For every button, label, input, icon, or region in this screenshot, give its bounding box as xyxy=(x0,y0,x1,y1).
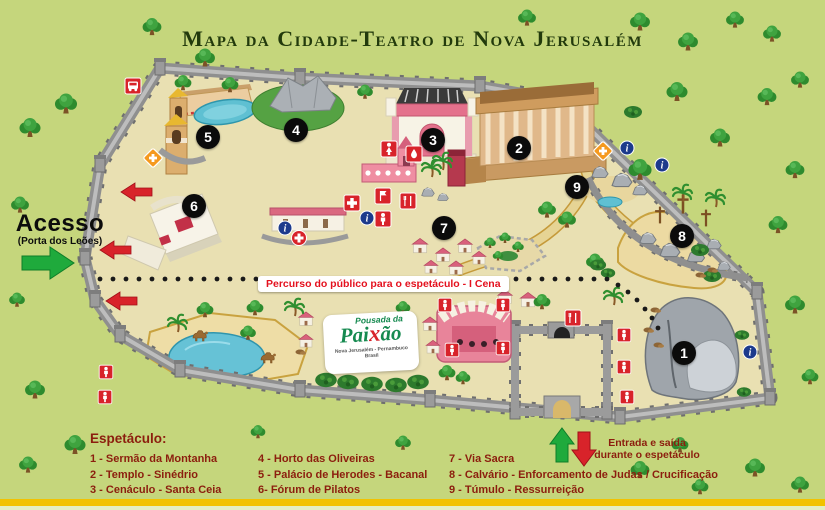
wall-tower xyxy=(294,380,306,397)
tree-icon xyxy=(802,369,819,384)
stand-icon xyxy=(617,328,631,342)
bush-icon xyxy=(737,387,751,397)
tree-icon xyxy=(65,435,86,454)
page-title: Mapa da Cidade-Teatro de Nova Jerusalém xyxy=(0,26,825,52)
tree-icon xyxy=(667,82,688,101)
stand-icon xyxy=(445,343,459,357)
pousada-main-text: Paixão xyxy=(323,322,418,347)
legend-item: 5 - Palácio de Herodes - Bacanal xyxy=(258,468,427,484)
tree-icon xyxy=(251,425,266,438)
drinking-water-icon xyxy=(406,146,422,162)
wall-tower xyxy=(154,58,166,75)
access-arrow-icon xyxy=(22,247,74,279)
tree-icon xyxy=(9,293,25,307)
info-icon xyxy=(743,345,757,359)
tree-icon xyxy=(19,457,37,473)
bush-icon xyxy=(407,375,429,389)
tree-icon xyxy=(20,118,41,137)
marker-8: 8 xyxy=(670,224,694,248)
wall-tower xyxy=(474,76,486,93)
legend-item: 2 - Templo - Sinédrio xyxy=(90,468,221,484)
bush-icon xyxy=(624,106,642,118)
first-aid-icon xyxy=(344,195,360,211)
flag-icon xyxy=(375,188,391,204)
marker-4: 4 xyxy=(284,118,308,142)
tree-icon xyxy=(769,216,788,233)
access-subtitle: (Porta dos Leões) xyxy=(4,236,116,247)
stand-icon xyxy=(438,298,452,312)
tree-icon xyxy=(745,459,765,477)
pousada-sign: Pousada da Paixão Nova Jerusalém - Perna… xyxy=(323,311,420,375)
access-label: Acesso (Porta dos Leões) xyxy=(4,212,116,247)
wall-tower xyxy=(114,325,126,342)
bus-stop-icon xyxy=(125,78,141,94)
info-icon xyxy=(655,158,669,172)
food-icon xyxy=(565,310,581,326)
tree-icon xyxy=(758,88,777,105)
marker-1: 1 xyxy=(672,341,696,365)
legend-item: 9 - Túmulo - Ressurreição xyxy=(449,483,718,499)
wall-tower xyxy=(79,248,91,265)
marker-5: 5 xyxy=(196,125,220,149)
wall-tower xyxy=(94,155,106,172)
restroom-women-icon xyxy=(381,141,397,157)
wall-tower xyxy=(614,407,626,424)
building-templo xyxy=(458,82,606,185)
legend-item: 1 - Sermão da Montanha xyxy=(90,452,221,468)
marker-6: 6 xyxy=(182,194,206,218)
tree-icon xyxy=(25,381,45,399)
tree-icon xyxy=(785,296,805,314)
bush-icon xyxy=(601,268,615,278)
bush-icon xyxy=(735,330,749,340)
stand-icon xyxy=(99,365,113,379)
wall-tower xyxy=(89,290,101,307)
bush-icon xyxy=(691,244,709,256)
legend-column-1: 1 - Sermão da Montanha 2 - Templo - Siné… xyxy=(90,452,221,499)
medical-icon xyxy=(292,231,307,246)
wall-tower xyxy=(764,388,776,405)
tree-icon xyxy=(55,94,77,114)
route-banner: Percurso do público para o espetáculo - … xyxy=(258,276,509,292)
tree-icon xyxy=(791,477,809,493)
marker-7: 7 xyxy=(432,216,456,240)
tree-icon xyxy=(791,72,809,88)
tree-icon xyxy=(395,436,411,450)
palm-tree-icon xyxy=(673,185,692,202)
marker-3: 3 xyxy=(421,128,445,152)
legend-item: 3 - Cenáculo - Santa Ceia xyxy=(90,483,221,499)
bush-icon xyxy=(590,260,606,271)
tree-icon xyxy=(786,161,805,178)
legend-column-2: 4 - Horto das Oliveiras 5 - Palácio de H… xyxy=(258,452,427,499)
palm-tree-icon xyxy=(706,190,725,207)
restroom-men-icon xyxy=(375,211,391,227)
info-icon xyxy=(620,141,634,155)
stand-icon xyxy=(98,390,112,404)
entrance-note-line2: durante o espetáculo xyxy=(592,449,702,461)
bush-icon xyxy=(385,378,407,392)
wall-tower xyxy=(174,360,186,377)
map-canvas: i xyxy=(0,0,825,510)
food-icon xyxy=(400,193,416,209)
wall-tower xyxy=(751,282,763,299)
entrance-note: Entrada e saída durante o espetáculo xyxy=(592,437,702,461)
wall-tower xyxy=(424,390,436,407)
stand-icon xyxy=(617,360,631,374)
legend-heading: Espetáculo: xyxy=(90,431,167,446)
entrance-note-line1: Entrada e saída xyxy=(592,437,702,449)
tree-icon xyxy=(710,129,730,147)
legend-item: 4 - Horto das Oliveiras xyxy=(258,452,427,468)
bush-icon xyxy=(337,375,359,389)
bush-icon xyxy=(315,373,337,387)
legend-item: 6- Fórum de Pilatos xyxy=(258,483,427,499)
tree-icon xyxy=(518,10,536,26)
stand-icon xyxy=(496,298,510,312)
info-icon xyxy=(278,221,292,235)
access-title: Acesso xyxy=(4,212,116,236)
legend-item: 8 - Calvário - Enforcamento de Judas / C… xyxy=(449,468,718,484)
stand-icon xyxy=(620,390,634,404)
stand-icon xyxy=(496,341,510,355)
marker-9: 9 xyxy=(565,175,589,199)
info-icon xyxy=(360,211,374,225)
marker-2: 2 xyxy=(507,136,531,160)
bush-icon xyxy=(361,377,383,391)
bottom-strip xyxy=(0,506,825,510)
bottom-yellow-bar xyxy=(0,499,825,506)
